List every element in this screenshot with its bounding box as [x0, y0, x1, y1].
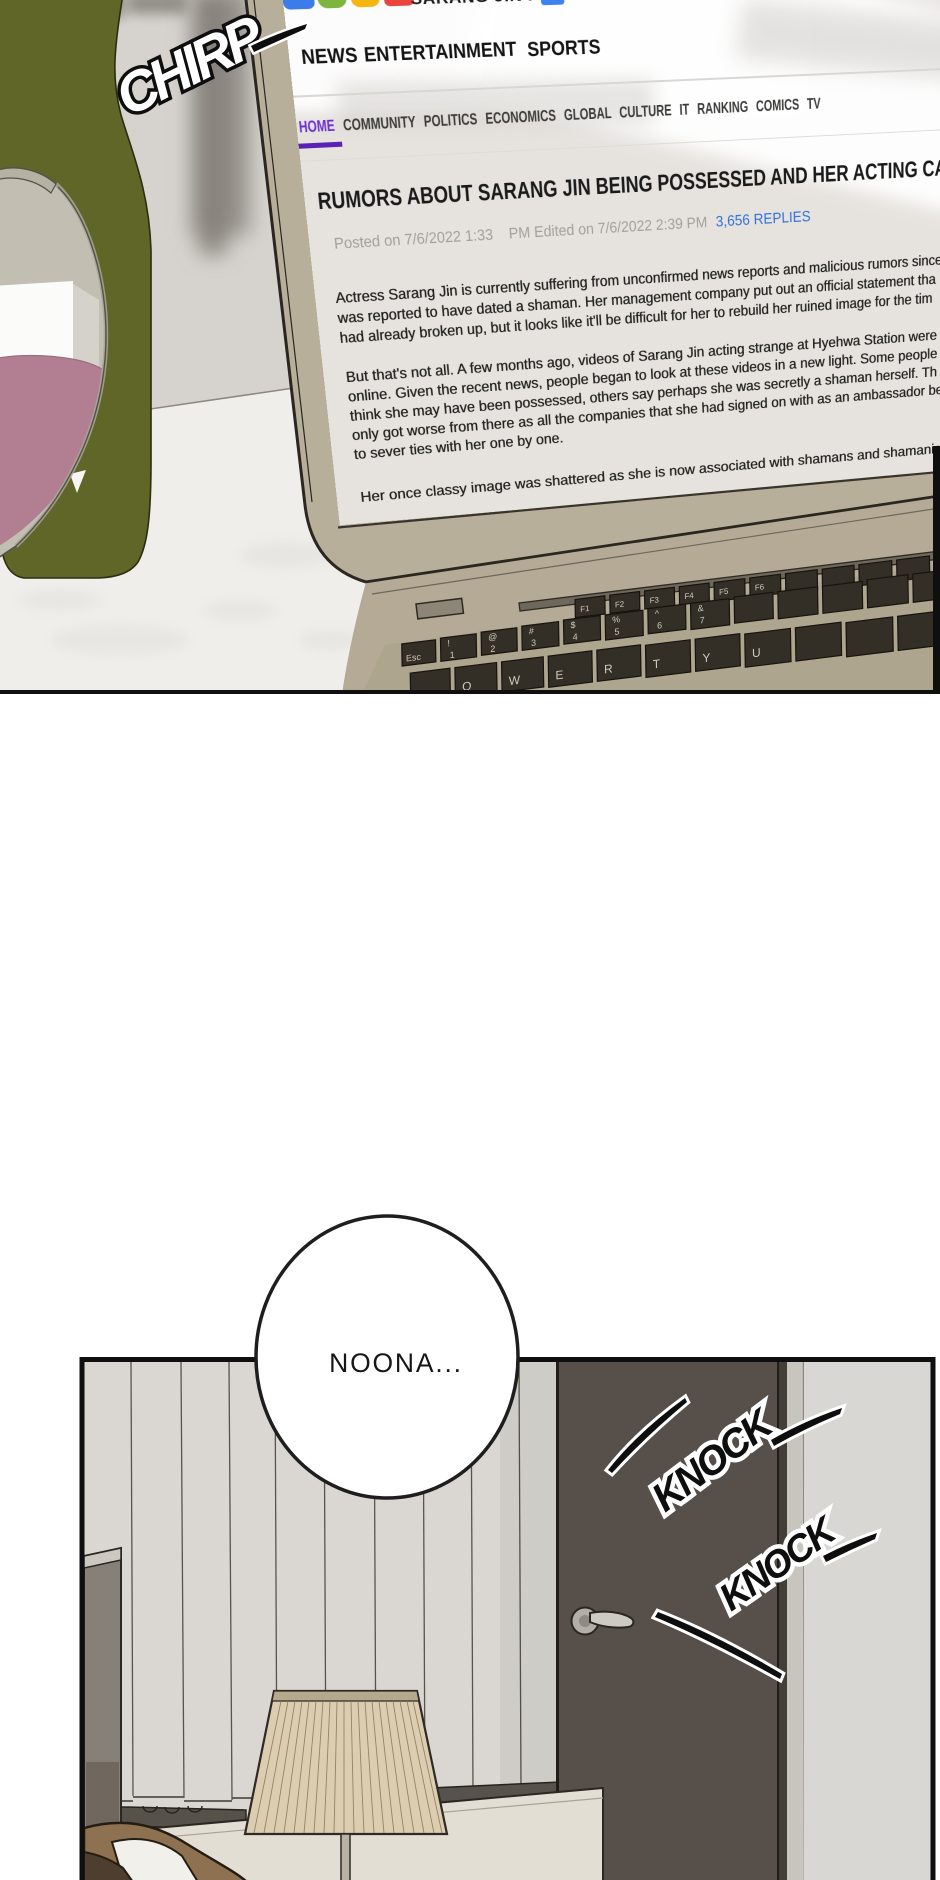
svg-text:$: $ — [570, 620, 575, 631]
svg-text:1: 1 — [450, 650, 455, 661]
svg-text:@: @ — [488, 631, 497, 642]
svg-text:T: T — [653, 657, 661, 672]
svg-text:U: U — [752, 645, 761, 660]
svg-text:6: 6 — [657, 620, 662, 631]
svg-text:CHIRP: CHIRP — [106, 2, 275, 127]
svg-text:#: # — [529, 626, 534, 637]
svg-text:W: W — [509, 673, 521, 688]
svg-text:F4: F4 — [684, 591, 694, 601]
svg-text:Esc: Esc — [406, 652, 422, 664]
svg-text:F5: F5 — [719, 587, 729, 597]
svg-text:4: 4 — [573, 631, 578, 642]
svg-text:&: & — [697, 603, 703, 614]
svg-text:!: ! — [447, 638, 450, 648]
svg-text:7: 7 — [700, 615, 705, 626]
svg-text:%: % — [612, 614, 620, 625]
svg-text:3: 3 — [531, 638, 536, 649]
svg-text:Y: Y — [702, 650, 710, 665]
svg-text:R: R — [604, 661, 613, 676]
svg-text:F6: F6 — [755, 582, 765, 592]
svg-text:E: E — [555, 667, 563, 682]
svg-text:NOONA...: NOONA... — [329, 1348, 463, 1378]
svg-text:F2: F2 — [615, 599, 625, 609]
svg-text:F1: F1 — [580, 604, 590, 614]
svg-text:F3: F3 — [650, 595, 660, 605]
svg-text:5: 5 — [614, 626, 619, 637]
svg-text:2: 2 — [490, 644, 495, 655]
